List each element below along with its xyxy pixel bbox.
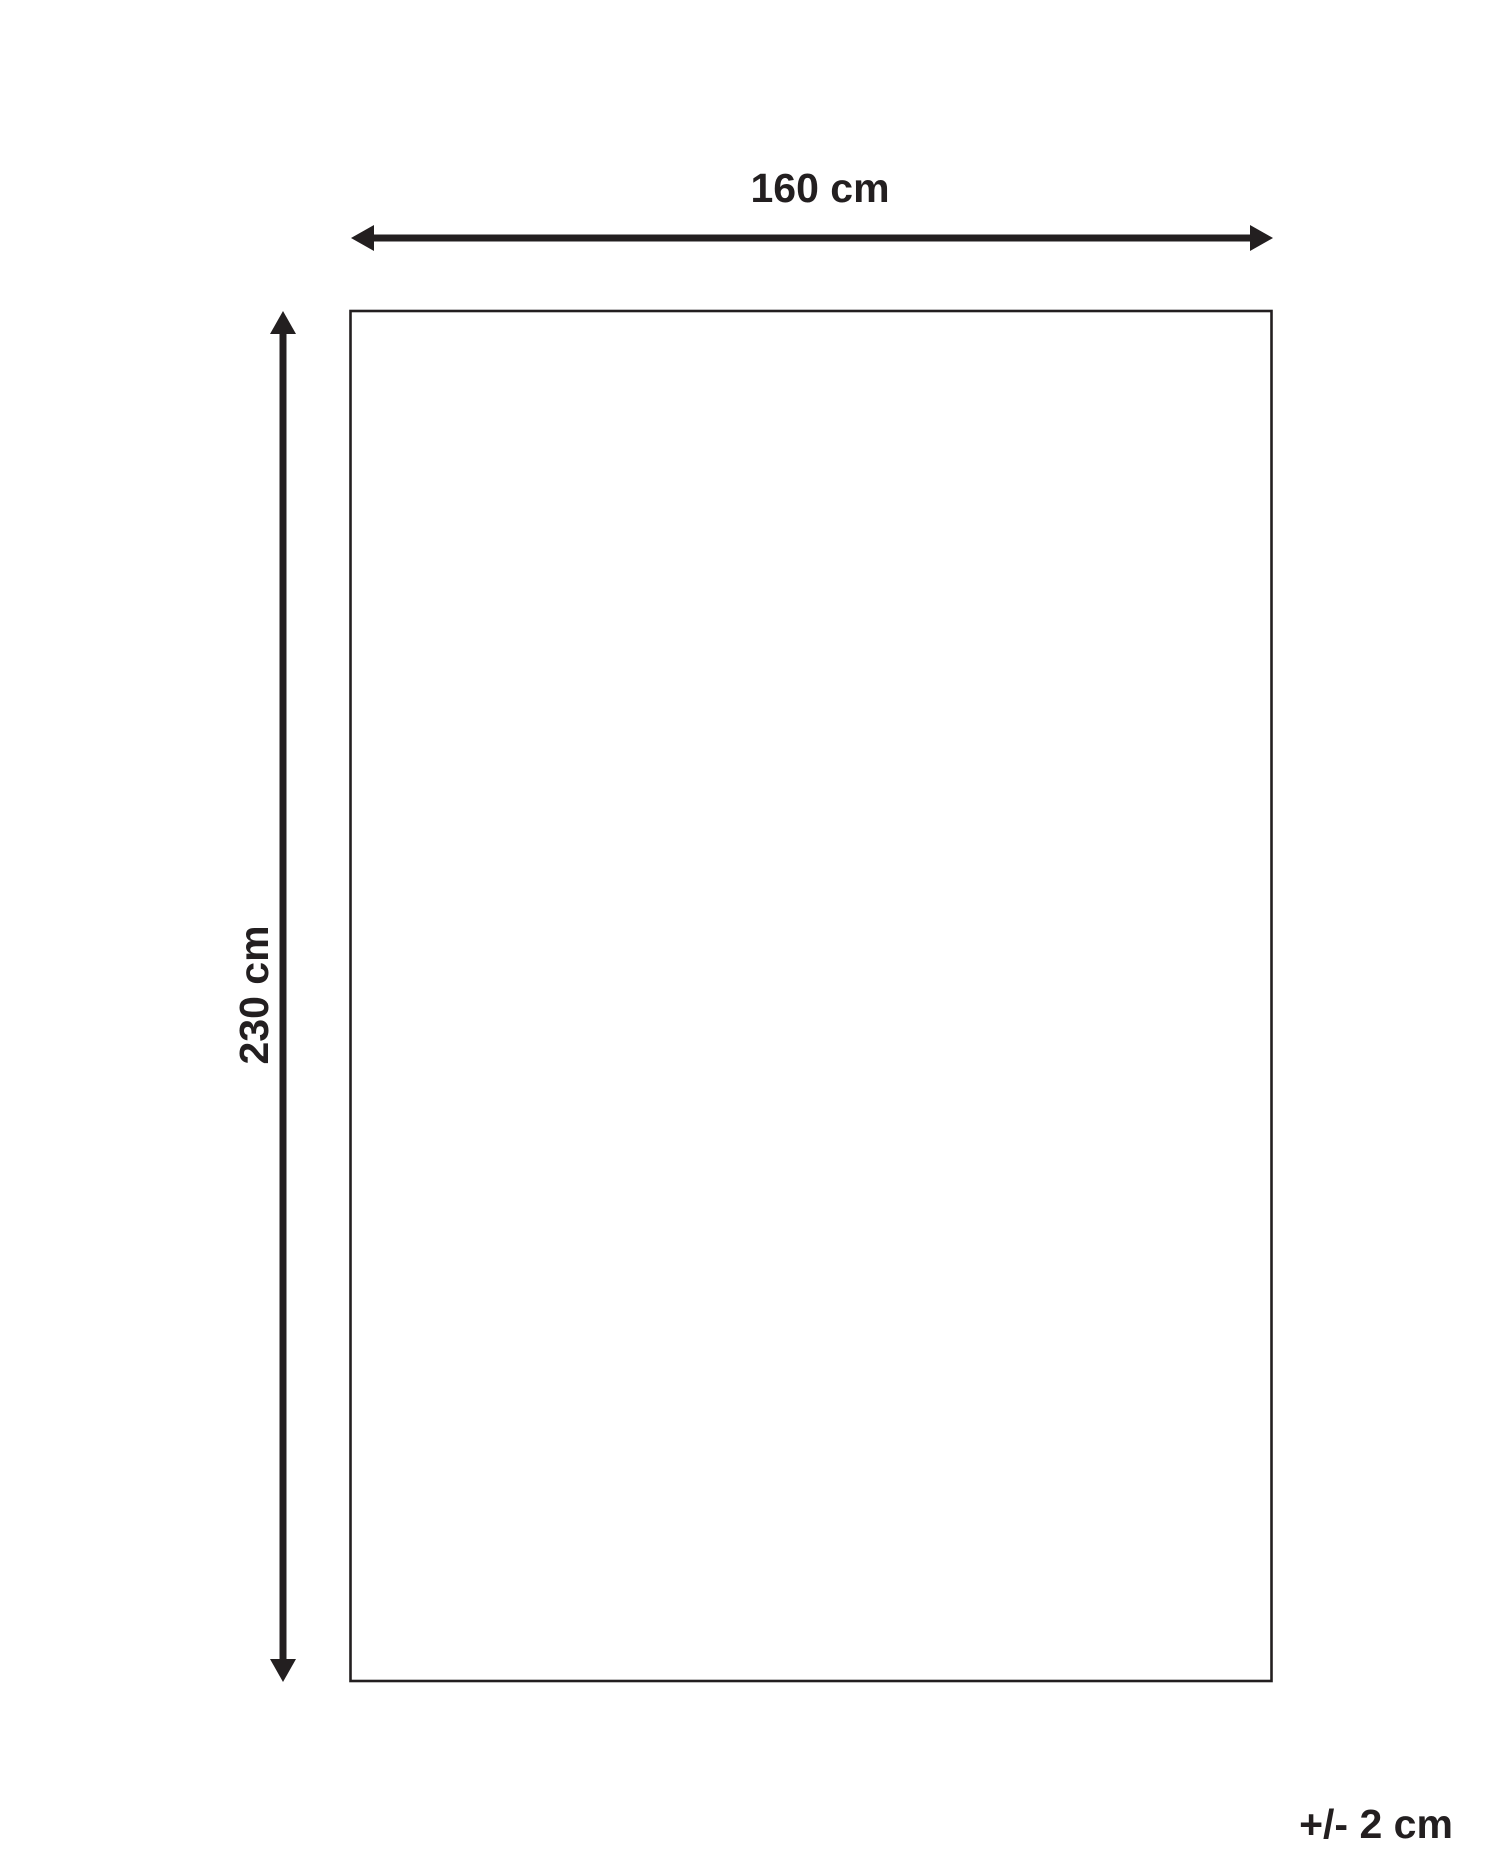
svg-text:230 cm: 230 cm <box>231 925 277 1064</box>
svg-text:+/- 2 cm: +/- 2 cm <box>1299 1801 1453 1847</box>
svg-text:160 cm: 160 cm <box>750 165 889 211</box>
